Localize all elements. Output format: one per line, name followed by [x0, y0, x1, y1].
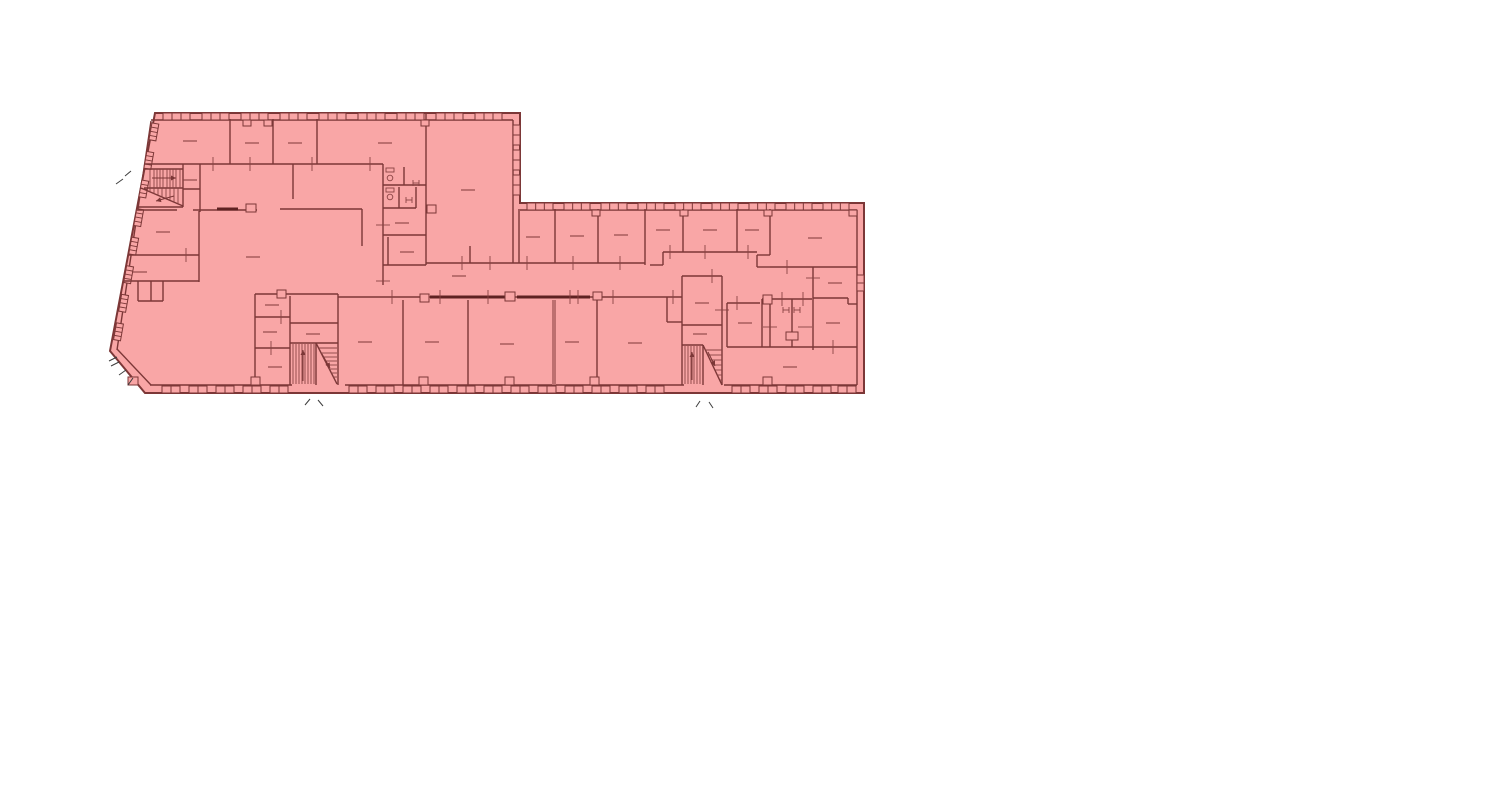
door-box — [590, 377, 599, 385]
window — [619, 386, 637, 393]
door-box — [592, 210, 600, 216]
window — [513, 175, 520, 195]
window — [457, 386, 475, 393]
window-frame — [527, 203, 553, 210]
window — [216, 386, 234, 393]
window — [823, 203, 849, 210]
door-box — [419, 377, 428, 385]
window — [638, 203, 664, 210]
window — [527, 203, 553, 210]
window — [749, 203, 775, 210]
window-frame — [163, 113, 190, 120]
window — [436, 113, 463, 120]
window — [202, 113, 229, 120]
window — [857, 275, 864, 291]
window — [712, 203, 738, 210]
window — [646, 386, 664, 393]
window-frame — [475, 113, 502, 120]
floor-plan-svg — [0, 0, 1500, 800]
window — [786, 386, 804, 393]
door-box — [763, 295, 772, 304]
door-box — [764, 210, 772, 216]
window — [397, 113, 424, 120]
door-box — [593, 292, 602, 300]
window — [349, 386, 367, 393]
window — [319, 113, 346, 120]
door-box — [264, 120, 272, 126]
door-box — [251, 377, 260, 385]
door-box — [786, 332, 798, 340]
door-box — [246, 204, 256, 212]
window-frame — [358, 113, 385, 120]
window-frame — [564, 203, 590, 210]
window — [280, 113, 307, 120]
window — [759, 386, 777, 393]
window — [592, 386, 610, 393]
door-box — [243, 120, 251, 126]
window — [484, 386, 502, 393]
window — [513, 150, 520, 170]
window — [358, 113, 385, 120]
window — [270, 386, 288, 393]
window — [430, 386, 448, 393]
window — [786, 203, 812, 210]
window-frame — [397, 113, 424, 120]
window-frame — [436, 113, 463, 120]
window-frame — [638, 203, 664, 210]
window-frame — [675, 203, 701, 210]
window-frame — [786, 203, 812, 210]
window-frame — [823, 203, 849, 210]
door-box — [277, 290, 286, 298]
window-frame — [749, 203, 775, 210]
door-box — [680, 210, 688, 216]
door-box — [505, 377, 514, 385]
window-frame — [601, 203, 627, 210]
door-box — [763, 377, 772, 385]
window — [601, 203, 627, 210]
door-box — [420, 294, 429, 302]
window — [565, 386, 583, 393]
door-box — [849, 210, 857, 216]
window — [162, 386, 180, 393]
window — [243, 386, 261, 393]
door-box — [421, 120, 429, 126]
window — [732, 386, 750, 393]
window — [241, 113, 268, 120]
window — [376, 386, 394, 393]
window — [838, 386, 856, 393]
window-frame — [202, 113, 229, 120]
window — [813, 386, 831, 393]
window — [163, 113, 190, 120]
plan-viewport — [0, 0, 1500, 800]
window-frame — [280, 113, 307, 120]
window — [511, 386, 529, 393]
window — [564, 203, 590, 210]
window-frame — [241, 113, 268, 120]
window — [403, 386, 421, 393]
window — [675, 203, 701, 210]
door-box — [427, 205, 436, 213]
window — [538, 386, 556, 393]
door-box — [505, 292, 515, 301]
window-frame — [712, 203, 738, 210]
window — [189, 386, 207, 393]
window — [475, 113, 502, 120]
window-frame — [319, 113, 346, 120]
window — [513, 125, 520, 145]
